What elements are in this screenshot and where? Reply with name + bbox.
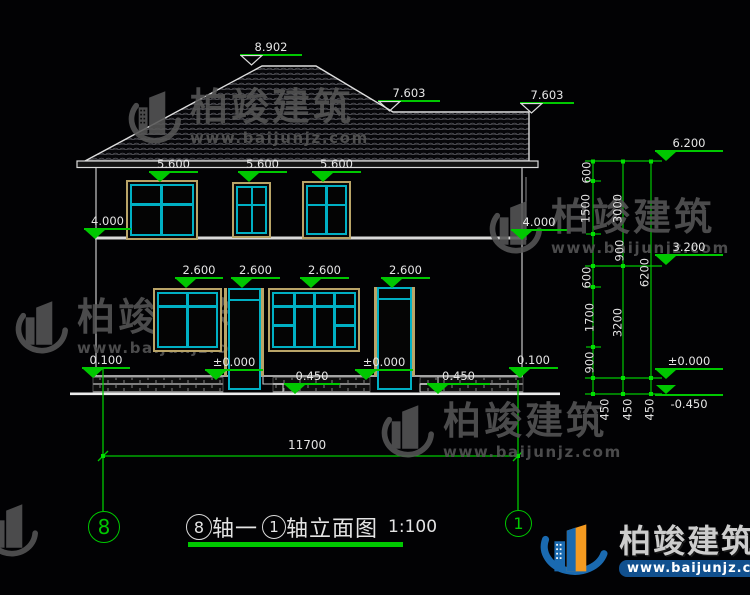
dimension-label: 450 (621, 388, 634, 432)
elevation-marker: 0.450 (427, 369, 490, 397)
elevation-marker: 5.600 (149, 157, 198, 185)
elevation-value: 2.600 (175, 263, 223, 277)
elevation-marker: 3.200 (655, 240, 723, 268)
watermark-url: www.baijunjz.com (190, 129, 369, 147)
dimension-label: 3000 (611, 187, 624, 231)
elevation-value: 8.902 (240, 40, 302, 54)
window-2f-right (302, 181, 351, 239)
elevation-marker-roof-left: 7.603 (378, 86, 440, 114)
title-text: 轴一 (212, 511, 258, 543)
elevation-value: 0.100 (509, 353, 558, 367)
watermark: 柏竣建筑 www.baijunjz.com (125, 84, 369, 150)
total-width-dimension: 11700 (288, 438, 326, 452)
elevation-value: 6.200 (655, 136, 723, 150)
elevation-marker: 5.600 (312, 157, 361, 185)
elevation-marker: 0.100 (509, 353, 558, 381)
elevation-marker: -0.450 (655, 384, 723, 412)
watermark-url: www.baijunjz.com (443, 443, 622, 461)
window-2f-left (126, 180, 198, 240)
elevation-value: 5.600 (312, 157, 361, 171)
dimension-label: 1500 (579, 187, 592, 231)
axis-bubble-8: 8 (88, 511, 120, 543)
dimension-label: 450 (643, 388, 656, 432)
elevation-marker: ±0.000 (655, 354, 723, 382)
elevation-triangle-icon (240, 55, 263, 66)
elevation-value: 2.600 (300, 263, 349, 277)
title-axis-bubble-right: 1 (262, 515, 286, 539)
elevation-value: 0.450 (284, 369, 340, 383)
elevation-marker: ±0.000 (355, 355, 413, 383)
drawing-title: 8 轴一 1 轴立面图 1:100 (186, 511, 437, 543)
elevation-triangle-icon (520, 103, 543, 114)
watermark-logo-icon (125, 84, 183, 150)
elevation-value: 0.450 (427, 369, 490, 383)
title-scale: 1:100 (388, 517, 437, 537)
elevation-value: 0.100 (82, 353, 130, 367)
title-text: 轴立面图 (286, 511, 378, 543)
brand-footer: 柏竣建筑 www.baijunjz.com (533, 520, 750, 582)
elevation-value: 7.603 (520, 88, 574, 102)
elevation-marker: ±0.000 (205, 355, 263, 383)
brand-name: 柏竣建筑 (619, 525, 750, 557)
elevation-drawing-canvas: 柏竣建筑 www.baijunjz.com 柏竣建筑 www.baijunjz.… (0, 0, 750, 595)
window-1f-left (153, 288, 222, 352)
window-1f-large (268, 288, 360, 352)
elevation-value: 2.600 (381, 263, 430, 277)
elevation-value: ±0.000 (655, 354, 723, 368)
elevation-marker: 2.600 (300, 263, 349, 291)
brand-url: www.baijunjz.com (619, 560, 750, 577)
elevation-value: 4.000 (511, 215, 567, 229)
brand-logo-icon (533, 520, 613, 582)
elevation-value: ±0.000 (205, 355, 263, 369)
dimension-label: 900 (613, 229, 626, 273)
watermark (0, 497, 40, 563)
elevation-marker: 2.600 (381, 263, 430, 291)
elevation-marker: 0.450 (284, 369, 340, 397)
watermark-logo-icon (378, 398, 436, 464)
elevation-value: 5.600 (149, 157, 198, 171)
dimension-label: 3200 (611, 301, 624, 345)
eave-band (77, 161, 538, 168)
dimension-label: 900 (583, 341, 596, 385)
elevation-value: 4.000 (84, 214, 131, 228)
watermark-logo-icon (0, 497, 40, 563)
elevation-triangle-icon (378, 101, 401, 112)
watermark: 柏竣建筑 www.baijunjz.com (378, 398, 622, 464)
elevation-value: 7.603 (378, 86, 440, 100)
dimension-label: 1700 (583, 296, 596, 340)
watermark-logo-icon (12, 294, 70, 360)
elevation-marker: 2.600 (175, 263, 223, 291)
dimension-label: 6200 (638, 251, 651, 295)
elevation-value: 3.200 (655, 240, 723, 254)
window-2f-middle (232, 182, 271, 238)
title-underline (188, 542, 403, 547)
elevation-marker: 4.000 (511, 215, 567, 243)
elevation-value: 2.600 (231, 263, 280, 277)
watermark-brand: 柏竣建筑 (190, 88, 369, 126)
elevation-marker: 0.100 (82, 353, 130, 381)
title-axis-bubble-left: 8 (186, 514, 212, 540)
axis-bubble-1: 1 (505, 510, 532, 537)
elevation-value: ±0.000 (355, 355, 413, 369)
elevation-marker: 4.000 (84, 214, 131, 242)
elevation-marker-ridge: 8.902 (240, 40, 302, 68)
dimension-label: 450 (598, 388, 611, 432)
dimension-label: 600 (580, 256, 593, 300)
elevation-marker-roof-right: 7.603 (520, 88, 574, 116)
elevation-marker: 5.600 (238, 157, 287, 185)
elevation-value: 5.600 (238, 157, 287, 171)
elevation-marker: 6.200 (655, 136, 723, 164)
elevation-marker: 2.600 (231, 263, 280, 291)
watermark-brand: 柏竣建筑 (443, 402, 622, 440)
elevation-value: -0.450 (655, 397, 723, 411)
